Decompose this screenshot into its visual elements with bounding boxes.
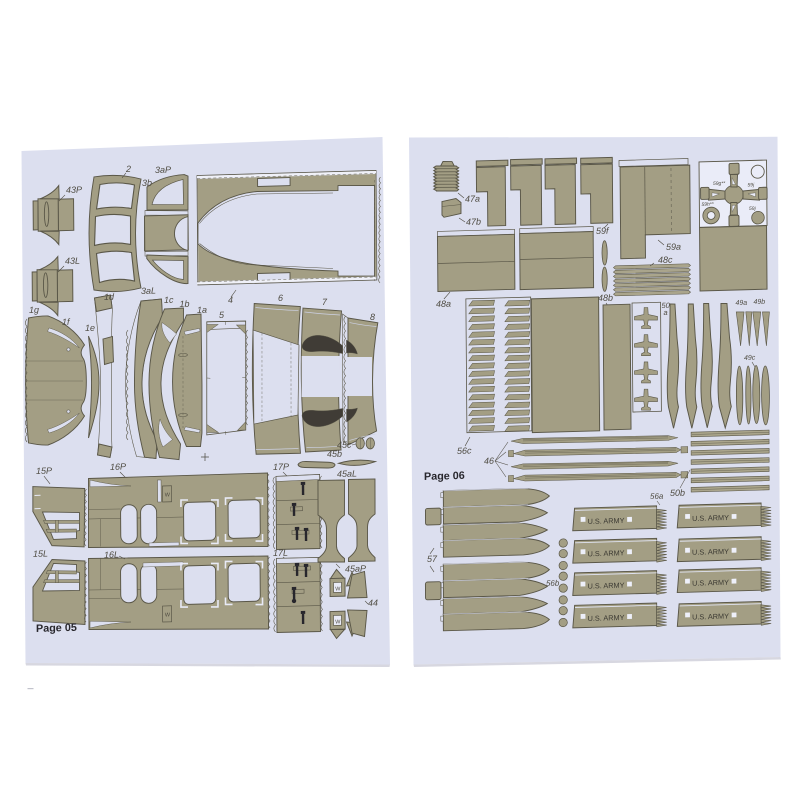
svg-text:1a: 1a — [197, 305, 207, 315]
svg-text:1d: 1d — [104, 292, 115, 302]
svg-text:2: 2 — [125, 164, 131, 174]
svg-text:45aL: 45aL — [337, 468, 357, 479]
svg-text:57: 57 — [427, 554, 438, 564]
svg-text:48c: 48c — [658, 255, 673, 265]
svg-text:3aL: 3aL — [141, 286, 156, 296]
svg-text:U.S. ARMY: U.S. ARMY — [692, 513, 729, 523]
svg-text:47a: 47a — [465, 194, 480, 204]
svg-text:8: 8 — [370, 312, 375, 322]
svg-text:a: a — [663, 308, 667, 317]
svg-text:1c: 1c — [164, 295, 174, 305]
svg-text:W: W — [165, 612, 171, 618]
svg-text:46: 46 — [484, 456, 494, 466]
svg-text:59h**: 59h** — [701, 202, 714, 208]
svg-text:43L: 43L — [65, 256, 80, 266]
svg-text:47b: 47b — [466, 217, 481, 227]
svg-text:59j: 59j — [747, 182, 755, 188]
svg-text:45b: 45b — [327, 449, 342, 459]
svg-text:U.S. ARMY: U.S. ARMY — [588, 516, 625, 526]
svg-text:56c: 56c — [457, 446, 472, 456]
svg-text:16P: 16P — [110, 462, 126, 472]
svg-text:W: W — [335, 619, 341, 625]
svg-text:48b: 48b — [598, 293, 613, 303]
svg-text:59a: 59a — [666, 242, 681, 252]
svg-text:1e: 1e — [85, 323, 95, 333]
svg-text:1b: 1b — [179, 299, 189, 309]
svg-text:U.S. ARMY: U.S. ARMY — [692, 578, 729, 588]
svg-text:W: W — [165, 492, 171, 498]
svg-text:1g: 1g — [29, 305, 39, 315]
svg-text:W: W — [335, 586, 341, 592]
svg-text:U.S. ARMY: U.S. ARMY — [692, 611, 729, 621]
svg-text:U.S. ARMY: U.S. ARMY — [692, 547, 729, 557]
svg-text:15P: 15P — [36, 466, 52, 476]
svg-text:4: 4 — [228, 295, 233, 305]
svg-text:49b: 49b — [753, 299, 765, 306]
svg-text:49c: 49c — [744, 355, 756, 362]
svg-text:3aP: 3aP — [155, 165, 171, 175]
svg-text:U.S. ARMY: U.S. ARMY — [588, 613, 625, 623]
svg-text:17L: 17L — [273, 548, 288, 558]
svg-text:59j: 59j — [749, 206, 757, 212]
svg-text:U.S. ARMY: U.S. ARMY — [588, 548, 625, 558]
svg-text:48a: 48a — [436, 299, 451, 309]
svg-text:U.S. ARMY: U.S. ARMY — [588, 581, 625, 591]
svg-text:17P: 17P — [273, 462, 289, 472]
svg-text:Page 05: Page 05 — [36, 622, 77, 635]
svg-text:56b: 56b — [546, 579, 560, 588]
svg-text:49a: 49a — [735, 300, 747, 307]
svg-text:16L: 16L — [104, 550, 119, 560]
svg-text:15L: 15L — [33, 549, 48, 559]
svg-text:44: 44 — [368, 598, 378, 608]
svg-text:6: 6 — [278, 293, 283, 303]
svg-text:50b: 50b — [670, 488, 685, 498]
svg-text:56a: 56a — [650, 492, 664, 501]
svg-text:59f: 59f — [596, 226, 610, 236]
svg-text:43P: 43P — [66, 185, 82, 195]
svg-text:3b: 3b — [142, 178, 152, 188]
svg-text:59g**: 59g** — [713, 181, 726, 187]
svg-text:Page 06: Page 06 — [424, 470, 465, 483]
